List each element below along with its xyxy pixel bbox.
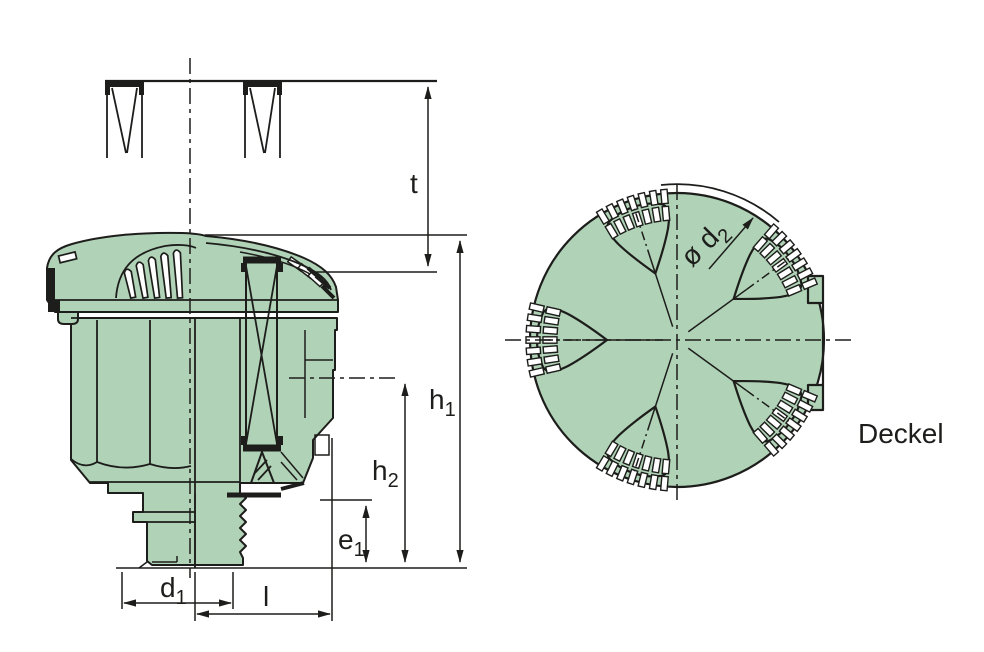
technical-drawing-page: t h1 h2 e1 d1 l — [0, 0, 984, 652]
filter-dimension-drawing: t h1 h2 e1 d1 l — [0, 0, 984, 652]
cover-top-view: ø d2 Deckel — [505, 184, 944, 505]
cover-caption: Deckel — [858, 418, 944, 449]
dim-label-h1: h1 — [429, 384, 456, 421]
mounting-spike-left — [105, 80, 144, 158]
dim-label-h2: h2 — [372, 455, 399, 492]
side-section-view: t h1 h2 e1 d1 l — [47, 58, 467, 621]
dim-label-l: l — [263, 581, 269, 612]
mounting-spike-right — [243, 80, 282, 158]
drawing-root: t h1 h2 e1 d1 l — [47, 58, 944, 621]
dim-label-e1: e1 — [338, 524, 365, 561]
dim-label-t: t — [410, 168, 418, 199]
filter-body — [71, 318, 337, 565]
